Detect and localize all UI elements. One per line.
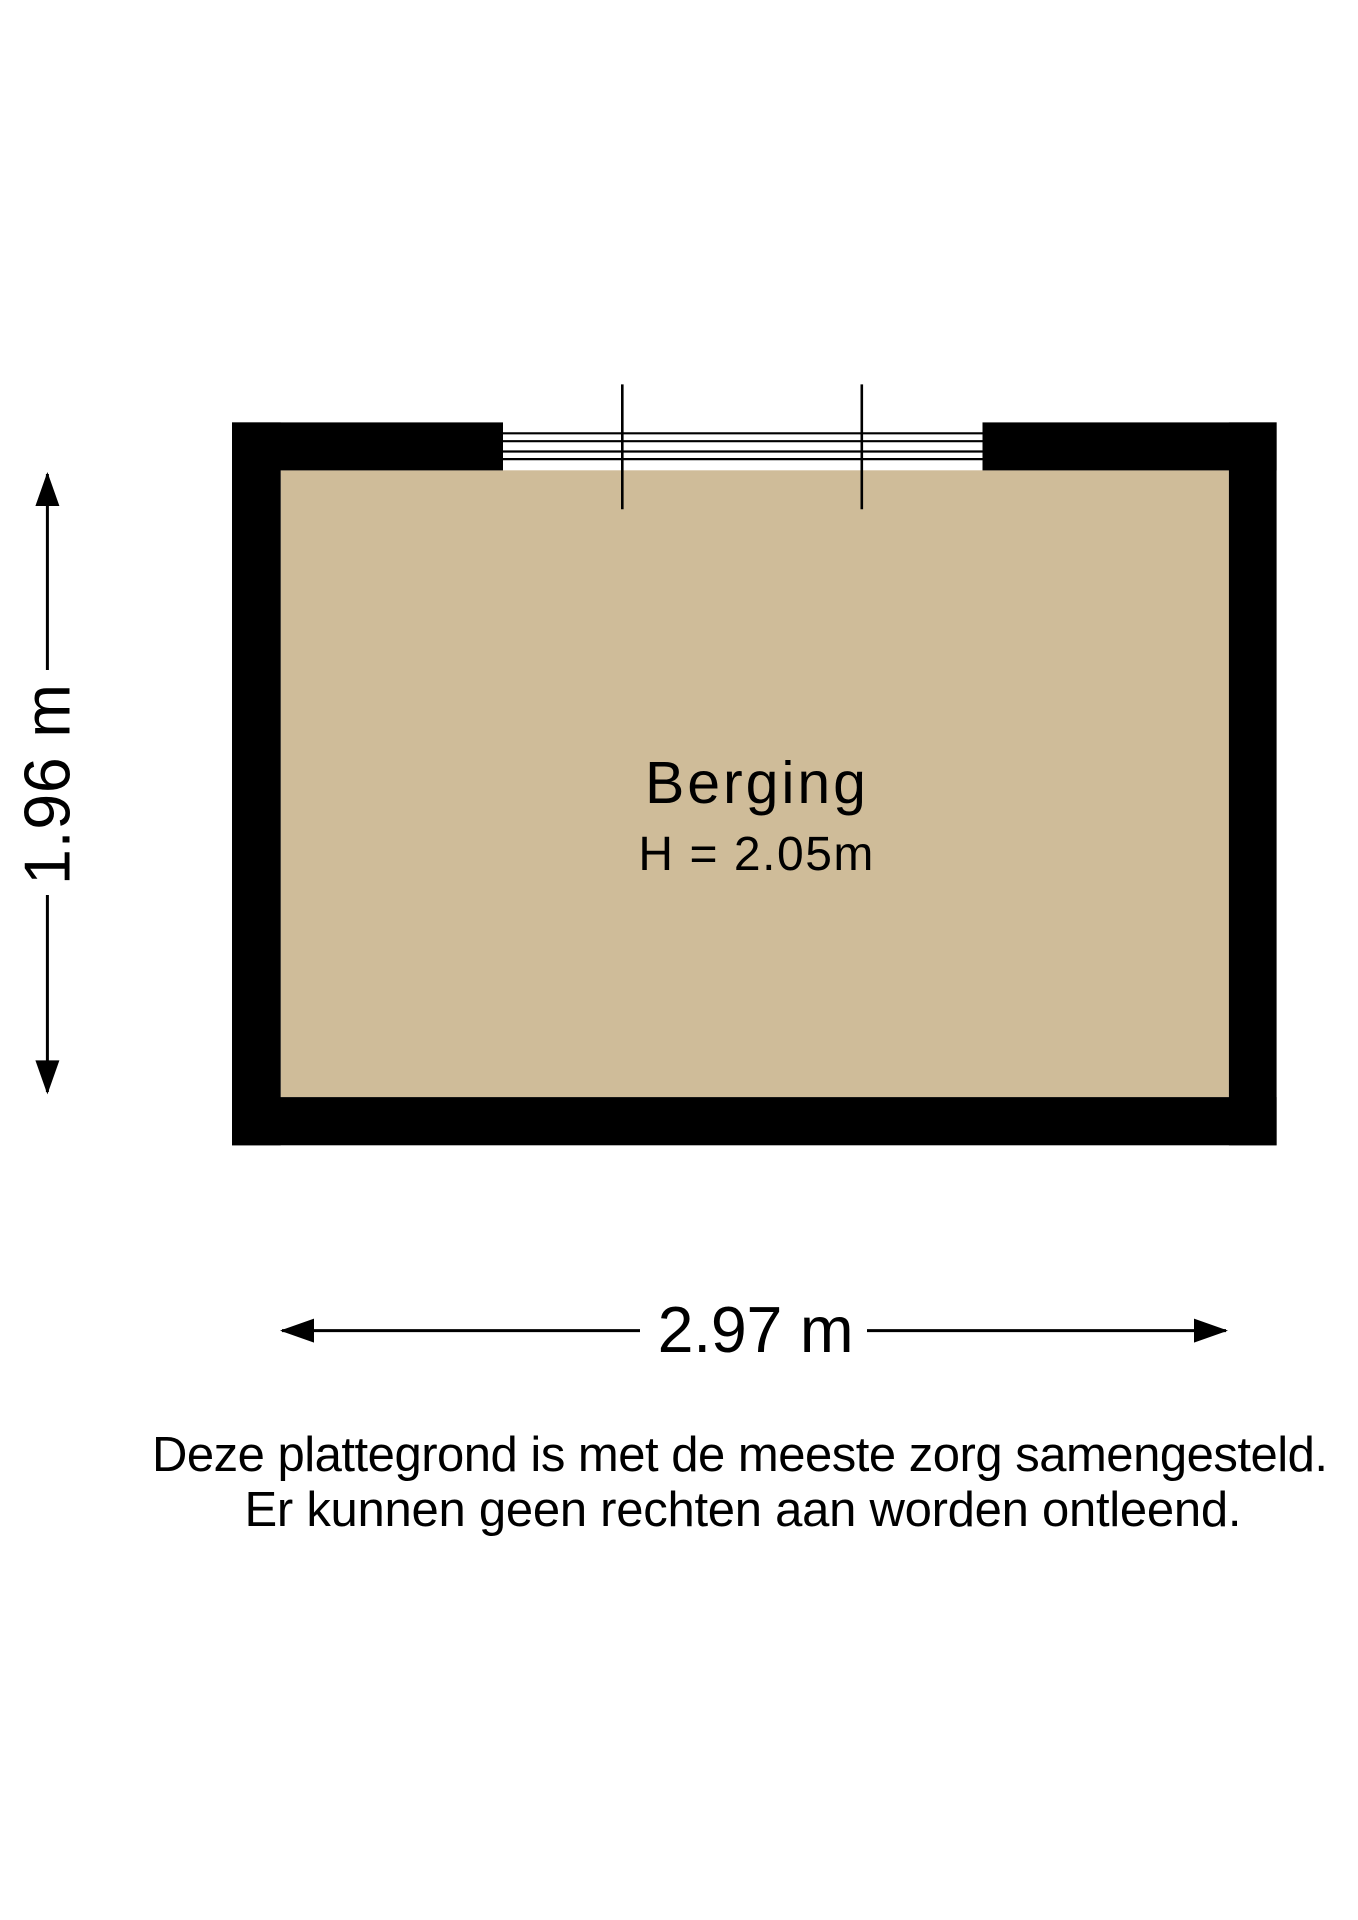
svg-text:H = 2.05m: H = 2.05m (638, 828, 873, 881)
svg-text:2.97 m: 2.97 m (658, 1294, 854, 1366)
svg-text:Deze plattegrond is met de mee: Deze plattegrond is met de meeste zorg s… (152, 1428, 1328, 1482)
svg-text:Berging: Berging (645, 750, 866, 816)
svg-text:Er kunnen geen rechten aan wor: Er kunnen geen rechten aan worden ontlee… (245, 1483, 1242, 1537)
svg-text:1.96 m: 1.96 m (12, 684, 84, 885)
